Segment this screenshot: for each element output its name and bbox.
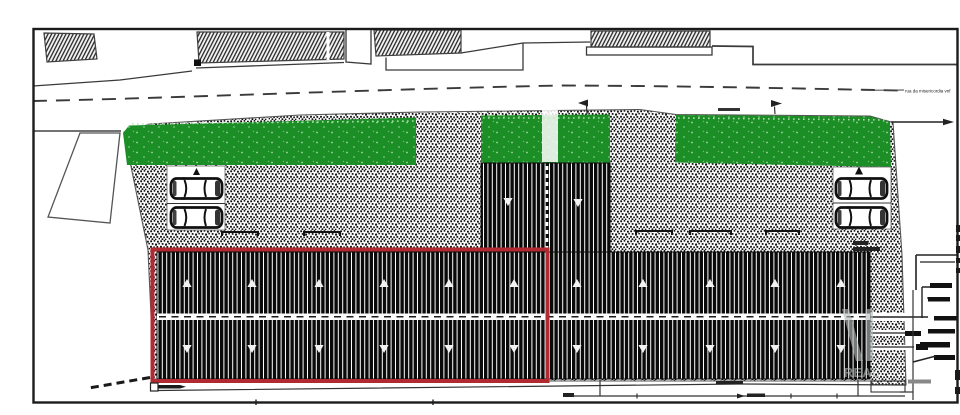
svg-text:rua da misericordia vnf: rua da misericordia vnf (905, 89, 951, 94)
svg-text:REAL: REAL (844, 366, 880, 380)
